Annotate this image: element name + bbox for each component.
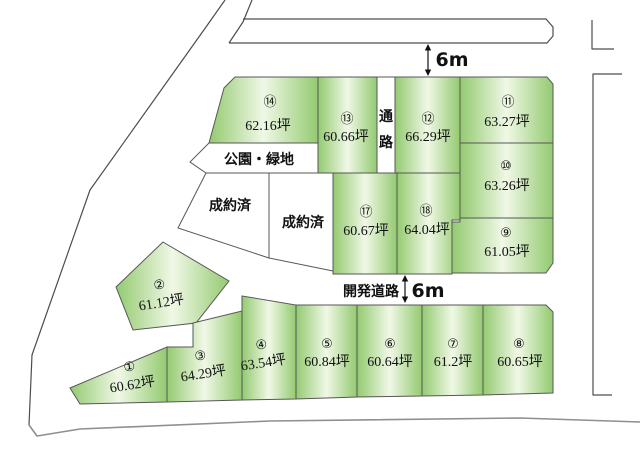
plot-17-area: 60.67坪 [343, 223, 389, 239]
plot-10-number: ⑩ [500, 159, 512, 174]
dev-road-width-arrow [402, 275, 408, 303]
right-road-top-corner-line [592, 20, 614, 49]
plot-10-area: 63.26坪 [484, 178, 530, 194]
plot-12-area: 66.29坪 [405, 129, 451, 145]
plot-11-number: ⑪ [501, 95, 514, 110]
bottom-road-line [29, 418, 640, 436]
plot-18-area: 64.04坪 [404, 222, 450, 238]
plot-5-shape [296, 305, 357, 399]
plot-12-number: ⑫ [421, 112, 434, 127]
passage-shape [377, 77, 395, 173]
plot-11-area: 63.27坪 [484, 114, 530, 130]
plot-6-area: 60.64坪 [367, 354, 413, 370]
passage-label-char-1: 通 [379, 109, 393, 125]
plot-5-area: 60.84坪 [304, 354, 350, 370]
plot-8-number: ⑧ [513, 337, 525, 352]
plot-17-number: ⑰ [359, 205, 372, 220]
plot-13-area: 60.66坪 [323, 129, 369, 145]
plot-2-number: ② [153, 277, 167, 294]
right-road-line [593, 74, 622, 395]
passage-label-char-2: 路 [379, 134, 394, 151]
plot-8-area: 60.65坪 [497, 354, 543, 370]
top-road-width-label: 6m [435, 49, 468, 71]
plot-13-number: ⑬ [340, 112, 353, 127]
top-road-width-arrow [425, 44, 431, 76]
plot-14-area: 62.16坪 [245, 118, 291, 134]
plot-18-number: ⑱ [419, 204, 432, 219]
plot-3-number: ③ [194, 348, 208, 365]
sold-label-1: 成約済 [209, 197, 252, 214]
site-plan-svg: 6m 開発道路 6m 通 路 公園・緑地 成約済 成約済 ① 60.62坪 ② … [0, 0, 640, 459]
plot-14-number: ⑭ [263, 95, 276, 110]
plot-4-shape [242, 296, 296, 400]
plot-7-number: ⑦ [447, 337, 459, 352]
site-plan-map: 6m 開発道路 6m 通 路 公園・緑地 成約済 成約済 ① 60.62坪 ② … [0, 0, 640, 459]
dev-road-label: 開発道路 [343, 283, 400, 300]
plot-4-number: ④ [255, 337, 269, 354]
dev-road-width-label: 6m [411, 280, 444, 302]
plot-5-number: ⑤ [321, 337, 333, 352]
sold-label-2: 成約済 [282, 214, 325, 231]
plot-11-shape [460, 77, 553, 143]
left-road-inner-line [229, 0, 252, 43]
plot-2-shape [116, 242, 229, 330]
plot-9-number: ⑨ [500, 226, 512, 241]
plot-7-area: 61.2坪 [434, 354, 473, 370]
top-road-outline [229, 19, 553, 43]
plot-1-number: ① [123, 359, 137, 376]
plot-9-area: 61.05坪 [484, 244, 530, 260]
plot-6-number: ⑥ [384, 337, 396, 352]
sold-area-1-shape [178, 173, 269, 258]
park-label: 公園・緑地 [224, 151, 294, 168]
